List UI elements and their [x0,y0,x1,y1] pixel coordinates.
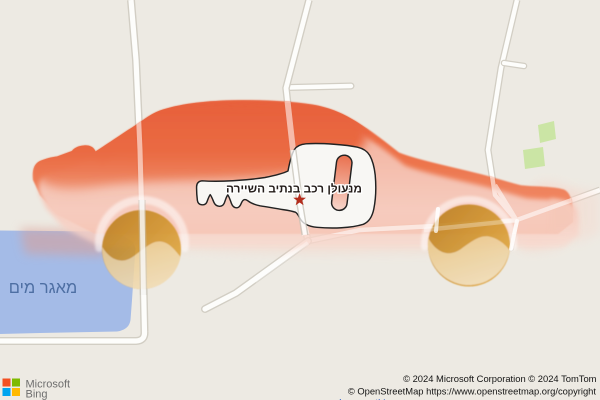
svg-text:Bing: Bing [26,389,48,400]
svg-text:מאגר מים: מאגר מים [9,279,78,297]
svg-text:מנעולן רכב בנתיב השיירה: מנעולן רכב בנתיב השיירה [226,182,362,196]
svg-text:Improve this map: Improve this map [339,397,411,400]
svg-text:© 2024 Microsoft Corporation ©: © 2024 Microsoft Corporation © 2024 TomT… [403,373,597,384]
svg-text:© OpenStreetMap https://www.op: © OpenStreetMap https://www.openstreetma… [348,386,597,397]
